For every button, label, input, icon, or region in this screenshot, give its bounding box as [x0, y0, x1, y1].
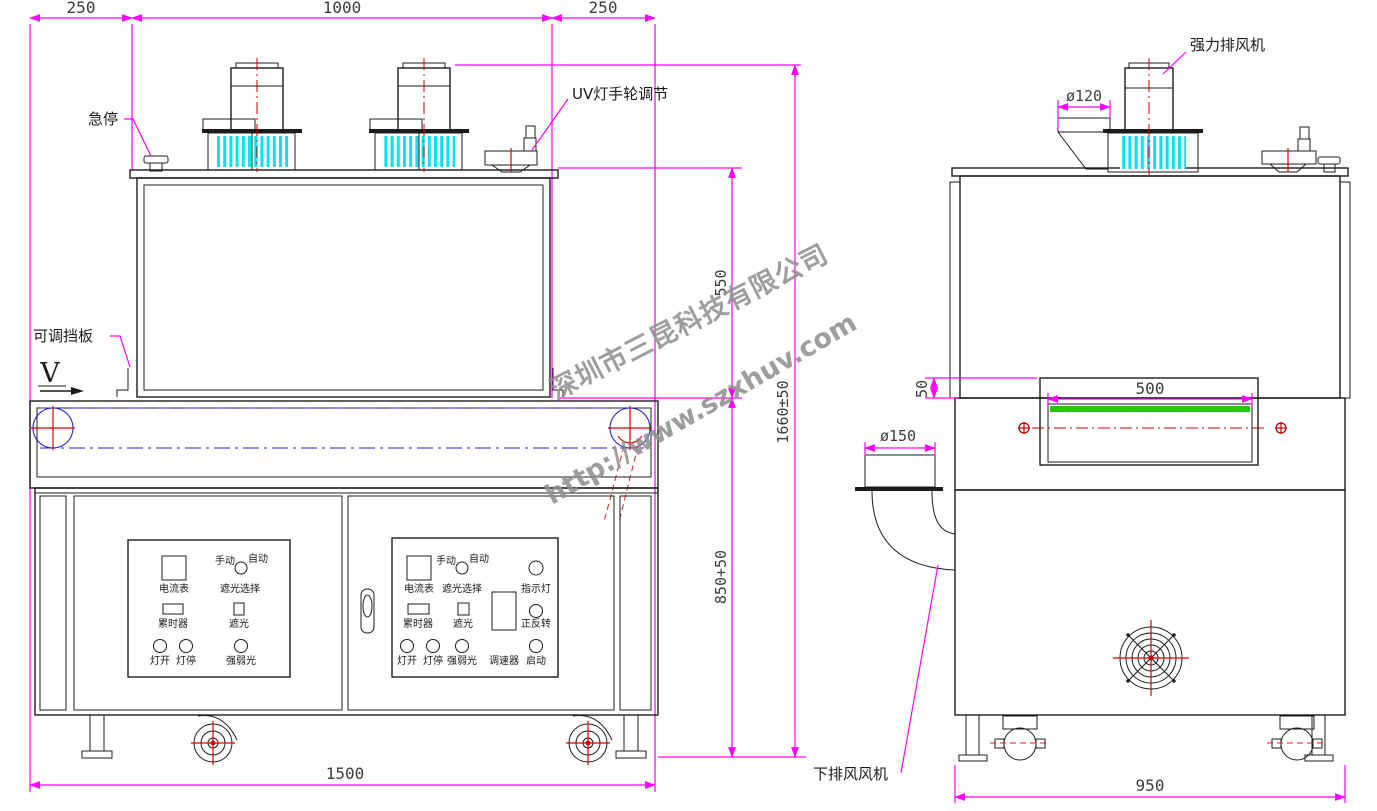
shade-select-label: 遮光选择	[442, 582, 482, 595]
emergency-stop-leader	[124, 119, 151, 156]
leveling-foot-icon	[624, 715, 638, 751]
dim-1500: 1500	[326, 764, 365, 783]
dim-phi150: ø150	[880, 427, 916, 445]
lamp-off-label: 灯停	[176, 654, 196, 667]
leveling-foot-icon	[966, 715, 979, 755]
cabinet-right-stile	[620, 496, 651, 710]
lamp-on-label: 灯开	[150, 655, 170, 667]
forward-reverse-label: 正反转	[521, 617, 551, 630]
bolt-icon	[1275, 422, 1287, 434]
watermark-url: http://www.szxhuv.com	[540, 307, 862, 511]
lower-exhaust-duct	[855, 455, 955, 570]
adjustable-baffle-leader	[110, 336, 130, 367]
caster-wheel-icon	[566, 716, 612, 766]
control-panel-right: 电流表 手动 自动 遮光选择 指示灯 累时器 遮光 正反转 灯开 灯停	[392, 538, 558, 677]
uv-machine-drawing: 250 1000 250 550 850+50 1660±50	[0, 0, 1377, 811]
fan-grille-icon	[1113, 620, 1189, 696]
control-panel-left: 电流表 手动 自动 遮光选择 累时器 遮光 灯开 灯停 强弱光	[128, 540, 290, 677]
lower-exhaust-fan-label: 下排风风机	[813, 765, 888, 783]
front-view: 250 1000 250 550 850+50 1660±50	[30, 0, 806, 792]
feet-and-casters-side	[959, 715, 1333, 761]
feet-and-casters-front	[82, 715, 646, 765]
manual-label: 手动	[436, 554, 456, 567]
lamp-off-label: 灯停	[423, 654, 443, 667]
mode-knob-icon	[456, 562, 468, 574]
lamp-motor-assembly-1	[202, 58, 302, 172]
indicator-light-icon	[529, 561, 543, 575]
irradiation-chamber	[137, 178, 550, 397]
dim-850-50: 850+50	[712, 550, 730, 604]
cabinet-left-stile	[40, 496, 66, 710]
emergency-stop-button-icon	[1318, 157, 1340, 172]
dim-1000: 1000	[323, 0, 362, 17]
shade-switch-icon	[458, 603, 469, 615]
exhaust-fan-assembly	[1058, 58, 1203, 176]
shade-label: 遮光	[453, 617, 473, 630]
watermark: 深圳市三昆科技有限公司 http://www.szxhuv.com	[540, 238, 862, 511]
forward-reverse-button-icon	[530, 605, 543, 618]
indicator-light-label: 指示灯	[521, 582, 551, 595]
shade-label: 遮光	[229, 617, 249, 630]
side-view: ø120 强力排风机	[813, 36, 1350, 803]
leveling-foot-icon	[90, 715, 104, 751]
strong-exhaust-fan-label: 强力排风机	[1190, 36, 1265, 54]
lamp-off-button-icon	[427, 640, 440, 653]
ammeter-label: 电流表	[404, 582, 434, 595]
cad-drawing-page: 250 1000 250 550 850+50 1660±50	[0, 0, 1377, 811]
caster-wheel-icon	[191, 716, 237, 766]
lower-exhaust-fan-leader	[901, 565, 938, 773]
belt-roller-left	[31, 406, 75, 450]
start-label: 启动	[526, 654, 546, 667]
adjustable-baffle-label: 可调挡板	[33, 327, 93, 345]
uv-handwheel-icon	[485, 126, 537, 172]
lamp-off-button-icon	[180, 640, 193, 653]
belt-direction-arrow: V	[38, 358, 84, 395]
dim-250-left: 250	[67, 0, 96, 17]
dim-500: 500	[1136, 379, 1165, 398]
bolt-icon	[1018, 422, 1030, 434]
timer-label: 累时器	[403, 618, 433, 630]
ammeter-label: 电流表	[159, 582, 189, 595]
manual-label: 手动	[215, 554, 235, 567]
lamp-motor-assembly-2	[369, 58, 469, 172]
belt-offset-dimension: 50	[913, 378, 1037, 398]
emergency-stop-label: 急停	[88, 110, 118, 128]
speed-controller-label: 调速器	[489, 655, 519, 667]
lamp-on-button-icon	[401, 640, 414, 653]
uv-handwheel-label: UV灯手轮调节	[572, 85, 668, 103]
uv-handwheel-leader	[532, 99, 568, 150]
lamp-on-button-icon	[154, 640, 167, 653]
control-cabinet: 电流表 手动 自动 遮光选择 累时器 遮光 灯开 灯停 强弱光 电流	[35, 488, 658, 715]
top-plate	[130, 170, 558, 178]
auto-label: 自动	[469, 552, 489, 565]
ammeter-icon	[407, 556, 431, 580]
cabinet-door-right	[348, 496, 614, 710]
cabinet-side	[955, 490, 1345, 715]
timer-icon	[408, 604, 429, 614]
depth-dimension: 950	[955, 765, 1345, 803]
caster-wheel-icon	[1267, 716, 1327, 760]
timer-label: 累时器	[158, 618, 188, 630]
machine-body	[960, 176, 1340, 398]
lamp-on-label: 灯开	[397, 655, 417, 667]
lower-duct-dimension: ø150	[865, 427, 935, 456]
door-handle-icon	[361, 589, 374, 633]
direction-arrowhead-icon	[71, 387, 84, 395]
cabinet-door-left	[74, 496, 342, 710]
uv-handwheel-icon	[1262, 127, 1316, 172]
chamber-inner-wall	[144, 185, 543, 390]
dim-250-right: 250	[589, 0, 618, 17]
dim-950: 950	[1136, 776, 1165, 795]
duct-flange-icon	[1058, 118, 1110, 132]
start-button-icon	[530, 640, 543, 653]
ammeter-icon	[162, 556, 186, 580]
duct-diameter-dimension: ø120	[1058, 87, 1110, 130]
timer-icon	[163, 604, 183, 614]
emergency-stop-button-icon	[144, 156, 168, 171]
shade-switch-icon	[234, 603, 244, 615]
adjustable-baffle-icon	[117, 368, 128, 397]
light-intensity-label: 强弱光	[226, 654, 256, 667]
dim-phi120: ø120	[1066, 87, 1102, 105]
belt-strip	[1050, 406, 1250, 412]
light-intensity-label: 强弱光	[447, 654, 477, 667]
belt-width-dimension: 500	[1048, 379, 1252, 406]
light-intensity-button-icon	[235, 640, 248, 653]
speed-controller-icon	[492, 592, 516, 630]
light-intensity-button-icon	[456, 640, 469, 653]
dim-50: 50	[913, 380, 931, 398]
mode-knob-icon	[235, 562, 247, 574]
caster-wheel-icon	[990, 716, 1050, 760]
auto-label: 自动	[248, 552, 268, 565]
belt-direction-v: V	[39, 358, 60, 389]
dim-1660: 1660±50	[774, 380, 792, 443]
cooling-fins-icon	[1120, 136, 1186, 169]
shade-select-label: 遮光选择	[220, 582, 260, 595]
